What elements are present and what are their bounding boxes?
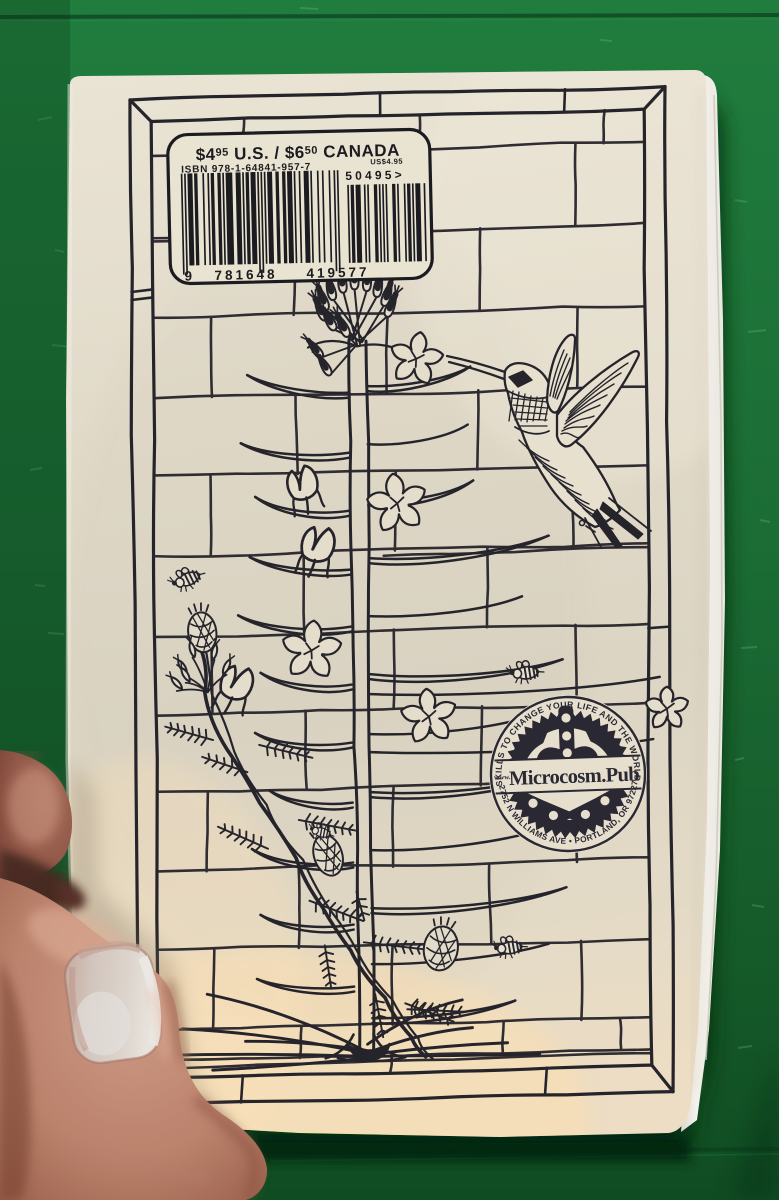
svg-text:50495>: 50495>: [345, 168, 405, 183]
svg-text:419577: 419577: [306, 264, 369, 280]
svg-text:US$4.95: US$4.95: [370, 157, 403, 167]
svg-text:9: 9: [184, 268, 193, 283]
svg-text:Microcosm.Pub: Microcosm.Pub: [509, 764, 640, 791]
svg-text:781648: 781648: [214, 267, 277, 283]
